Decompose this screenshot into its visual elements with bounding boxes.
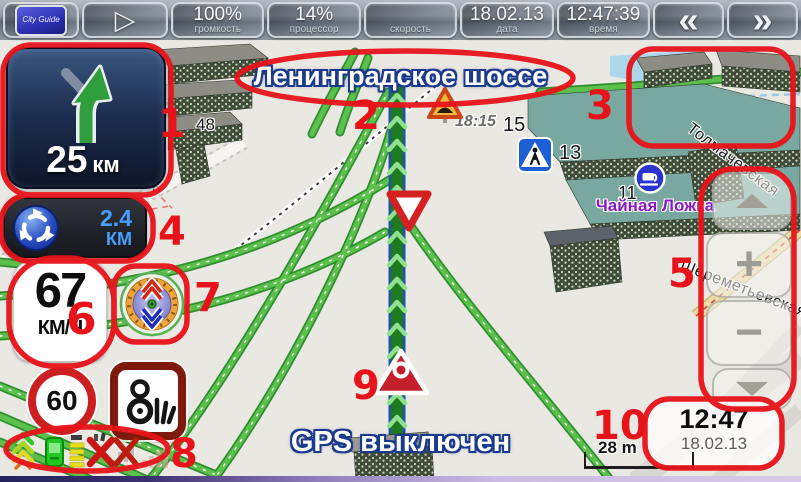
speed-value: 67 [14, 265, 106, 317]
speed-button[interactable]: скорость [364, 2, 457, 38]
speedometer-panel[interactable]: 67 КМ/Ч [13, 261, 107, 362]
navigation-app-screen: { "toolbar": { "logo_text": "City Guide"… [0, 0, 801, 482]
traffic-level-icon [14, 434, 32, 468]
next-maneuver-distance: 2.4 [100, 206, 132, 230]
double-chevron-right-icon: » [753, 3, 773, 37]
date-button[interactable]: 18.02.13 дата [460, 2, 553, 38]
time-value: 12:47:39 [566, 5, 640, 24]
tilt-down-button[interactable] [712, 368, 792, 410]
satellite-disconnected-icon [116, 440, 136, 464]
plus-icon: + [735, 245, 763, 285]
turn-distance-value: 25 [46, 139, 87, 180]
next-maneuver-panel[interactable]: 2.4 КМ [3, 197, 147, 258]
speed-limit-value: 60 [46, 385, 77, 417]
minus-icon: − [735, 313, 763, 353]
next-maneuver-unit: КМ [100, 230, 132, 249]
clock-date: 18.02.13 [647, 434, 781, 454]
compass-icon[interactable] [119, 271, 185, 337]
back-button[interactable]: « [653, 2, 724, 38]
gps-disconnected-icon [90, 433, 112, 464]
speed-label: скорость [390, 24, 431, 36]
map-scale-bar [584, 452, 694, 469]
forward-button[interactable]: » [727, 2, 798, 38]
volume-button[interactable]: 100% громкость [171, 2, 264, 38]
turn-arrow-icon [8, 49, 164, 143]
cpu-value: 14% [295, 5, 333, 24]
chevron-up-icon [736, 194, 768, 208]
speed-limit-sign[interactable]: 60 [28, 367, 96, 435]
zoom-in-button[interactable]: + [706, 232, 792, 298]
connection-status-bar[interactable] [10, 428, 170, 474]
date-value: 18.02.13 [470, 5, 544, 24]
time-label: время [589, 24, 618, 36]
play-icon: ▷ [115, 5, 136, 35]
volume-value: 100% [193, 5, 242, 24]
city-guide-logo-icon: City Guide [15, 5, 67, 36]
top-toolbar: City Guide ▷ 100% громкость 14% процессо… [0, 0, 801, 40]
speed-camera-icon [120, 373, 176, 429]
volume-label: громкость [194, 24, 240, 36]
signal-bars-icon [142, 446, 168, 468]
device-connection-icon [46, 438, 63, 466]
speed-unit: КМ/Ч [14, 317, 106, 339]
roundabout-icon [12, 204, 60, 252]
time-button[interactable]: 12:47:39 время [557, 2, 650, 38]
chevron-down-icon [736, 382, 768, 396]
zoom-out-button[interactable]: − [706, 300, 792, 366]
cpu-label: процессор [290, 24, 339, 36]
active-route [389, 75, 405, 482]
window-bottom-edge [0, 476, 801, 482]
play-route-button[interactable]: ▷ [82, 2, 168, 38]
next-turn-panel[interactable]: 25км [6, 47, 166, 189]
double-chevron-left-icon: « [679, 3, 699, 37]
cpu-button[interactable]: 14% процессор [267, 2, 360, 38]
tilt-up-button[interactable] [712, 172, 792, 230]
battery-level-icon [70, 435, 84, 467]
app-logo-button[interactable]: City Guide [3, 2, 79, 38]
turn-distance-unit: км [92, 152, 119, 177]
date-label: дата [496, 24, 517, 36]
